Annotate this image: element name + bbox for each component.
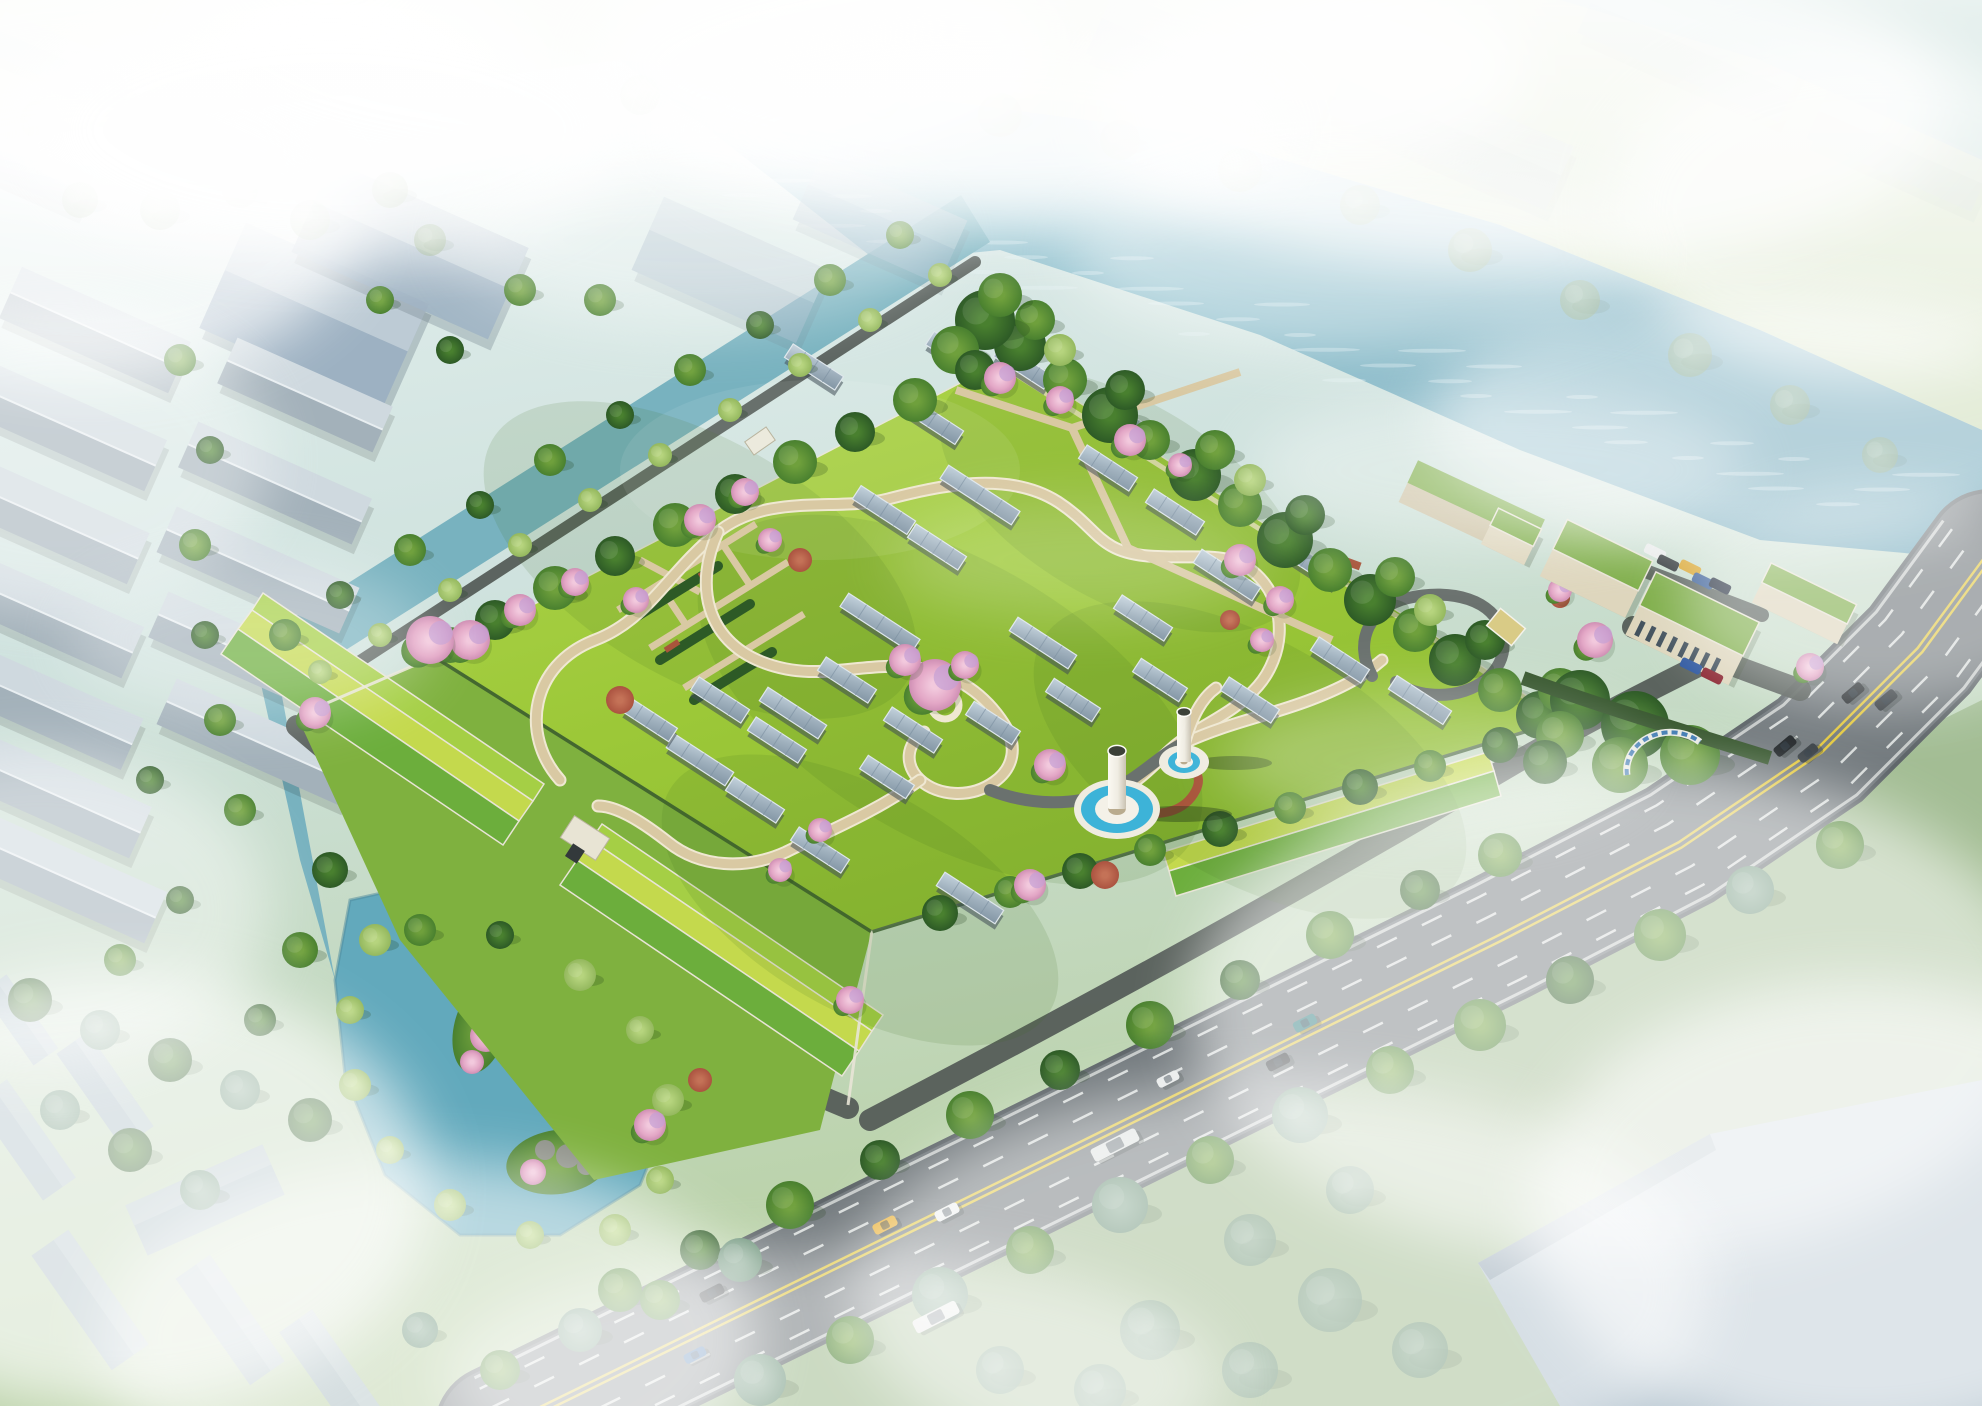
rendering-svg (0, 0, 1982, 1406)
aerial-site-rendering (0, 0, 1982, 1406)
top-haze-overlay (0, 0, 1982, 300)
